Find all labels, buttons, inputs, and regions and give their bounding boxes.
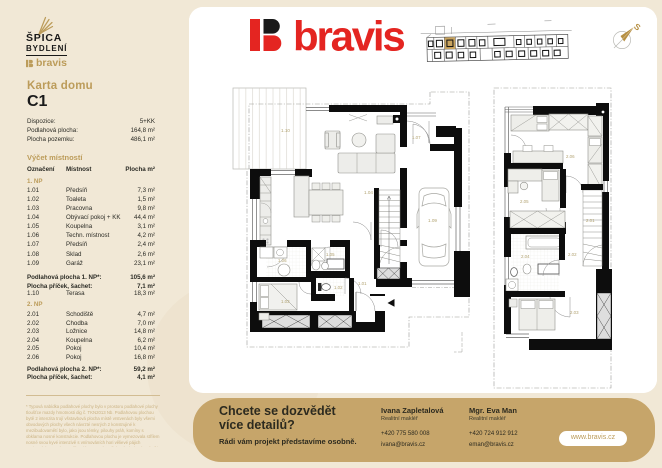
svg-text:2.04: 2.04 — [521, 254, 530, 259]
svg-text:2.01: 2.01 — [586, 218, 595, 223]
svg-text:2.06: 2.06 — [566, 154, 575, 159]
svg-text:2.02: 2.02 — [568, 252, 577, 257]
svg-text:1.03: 1.03 — [281, 299, 290, 304]
svg-text:1.07: 1.07 — [412, 135, 421, 140]
svg-text:1.02: 1.02 — [334, 285, 343, 290]
svg-text:S: S — [632, 21, 643, 33]
svg-text:1.10: 1.10 — [281, 128, 290, 133]
svg-text:1.01: 1.01 — [358, 281, 367, 286]
svg-text:2.05: 2.05 — [520, 199, 529, 204]
svg-text:1.04: 1.04 — [364, 190, 373, 195]
svg-text:1.09: 1.09 — [428, 218, 437, 223]
svg-text:1.06: 1.06 — [278, 258, 287, 263]
svg-text:1.05: 1.05 — [326, 252, 335, 257]
svg-text:2.03: 2.03 — [570, 310, 579, 315]
